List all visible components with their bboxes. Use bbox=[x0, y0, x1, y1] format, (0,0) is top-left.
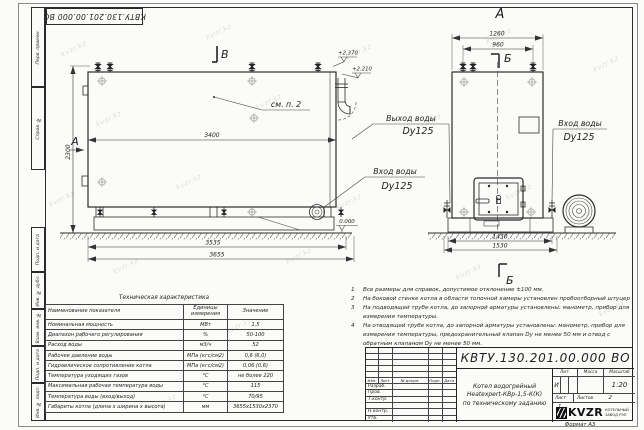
section-letter: В bbox=[221, 48, 229, 61]
pipe-label-text: Выход воды bbox=[386, 114, 436, 123]
doc-number: КВТУ.130.201.00.000 ВО bbox=[456, 348, 634, 369]
note-number: 4 bbox=[348, 322, 363, 349]
kvzr-logo-text: KVZR bbox=[568, 406, 603, 419]
format-label: Формат А3 bbox=[520, 422, 640, 428]
margin-cell-vzam-inv: Взам. инв. № bbox=[31, 309, 45, 346]
side-view: В А см. п. 2 +2.370 bbox=[60, 46, 373, 262]
dim-value: 1430 bbox=[492, 234, 507, 241]
company-name-line: ЗАВОД РЭП bbox=[605, 413, 629, 417]
section-letter: Б bbox=[504, 52, 512, 65]
table-row: Максимальная рабочая температура воды°С1… bbox=[46, 381, 284, 391]
drain-valve-icon bbox=[98, 207, 102, 217]
margin-cell-podp-data-2: Подп. и дата bbox=[31, 346, 45, 383]
title-block: КВТУ.130.201.00.000 ВО Котел водогрейный… bbox=[365, 347, 633, 421]
elevation-mark-2370: +2.370 bbox=[333, 51, 359, 67]
mass-header: Масса bbox=[578, 369, 604, 377]
dim-value: 1260 bbox=[489, 31, 504, 38]
product-name-line: по техническому заданию bbox=[463, 400, 546, 409]
dim-value: 960 bbox=[492, 42, 504, 49]
kvzr-logo-mark-icon bbox=[556, 407, 567, 419]
nameplate bbox=[519, 117, 539, 133]
drain-valve-icon bbox=[152, 207, 156, 217]
door-handle bbox=[476, 199, 489, 203]
table-row: Расход водым3/ч52 bbox=[46, 340, 284, 350]
valve-icon bbox=[315, 63, 320, 72]
elevation-mark-2210: +2.210 bbox=[342, 67, 373, 78]
margin-cell-podp-data-1: Подп. и дата bbox=[31, 227, 45, 272]
top-stamp-box: КВТУ.130.201.00.000 ВО bbox=[46, 8, 143, 25]
table-row: Диапазон рабочего регулирования%50-100 bbox=[46, 330, 284, 340]
pipe-dn-text: Dy125 bbox=[381, 181, 412, 192]
product-name-line: Котел водогрейный bbox=[473, 383, 536, 392]
mass-value bbox=[578, 377, 604, 394]
dim-3400: 3400 bbox=[88, 132, 336, 140]
boiler-shell-side bbox=[88, 72, 336, 207]
sheet-label: Лист bbox=[555, 396, 566, 401]
flange-mark-icon bbox=[249, 113, 259, 123]
note-number: 1 bbox=[348, 286, 363, 295]
margin-label: Подп. и дата bbox=[36, 234, 41, 265]
col-header: Наименование показателя bbox=[46, 305, 184, 320]
pipe-dn-text: Dy125 bbox=[563, 132, 594, 143]
margin-label: Взам. инв. № bbox=[36, 312, 41, 343]
col-header: Единицы измерения bbox=[184, 305, 228, 320]
elevation-value: +2.370 bbox=[338, 51, 359, 57]
lit-value: И bbox=[553, 377, 561, 394]
margin-label: Инв. № подл. bbox=[36, 386, 41, 418]
table-row: Габариты котла (длина х ширина х высота)… bbox=[46, 402, 284, 412]
callout-see-note-2: см. п. 2 bbox=[213, 96, 310, 110]
sheets-value: 2 bbox=[608, 395, 612, 401]
callout-text: см. п. 2 bbox=[271, 100, 301, 109]
table-row: Гидравлическое сопротивление котлаМПа (к… bbox=[46, 361, 284, 371]
elevation-mark-zero: 0.000 bbox=[336, 219, 358, 233]
valve-icon bbox=[107, 63, 112, 72]
note-item: 4На отводящей трубе котла, до запорной а… bbox=[348, 322, 631, 349]
lit-header: Лит. bbox=[553, 369, 578, 377]
pipe-dn-text: Dy125 bbox=[402, 126, 433, 137]
note-item: 1Все размеры для справок, допустимое отк… bbox=[348, 286, 631, 295]
pipe-label-text: Вход воды bbox=[558, 119, 602, 128]
note-text: На боковой стенке котла в области топочн… bbox=[363, 295, 631, 304]
margin-cell-sprav-no: Справ. № bbox=[31, 87, 45, 170]
lit-mass-scale-headers: Лит. Масса Масштаб bbox=[553, 369, 635, 377]
outlet-pipe-elbow bbox=[335, 78, 356, 120]
margin-label: Подп. и дата bbox=[36, 349, 41, 380]
tech-characteristics: Техническая характеристика Наименование … bbox=[45, 295, 283, 413]
view-title-letter: А bbox=[495, 7, 505, 22]
product-name: Котел водогрейный Heatexpert-КВр-1,5-К(К… bbox=[456, 369, 552, 422]
drain-valve-icon bbox=[222, 207, 226, 217]
furnace-door bbox=[474, 178, 525, 220]
pipe-label-text: Вход воды bbox=[373, 167, 417, 176]
flange-mark-icon bbox=[247, 76, 257, 86]
table-row: Температура воды (вход/выход)°С70/95 bbox=[46, 392, 284, 402]
note-item: 3На подводящей трубе котла, до запорной … bbox=[348, 304, 631, 322]
margin-cell-perv-primen: Перв. примен. bbox=[31, 7, 45, 87]
table-row: Рабочее давление водыМПа (кгс/см2)0,6 (6… bbox=[46, 350, 284, 360]
valve-icon bbox=[460, 63, 465, 72]
section-mark-b-top: Б bbox=[491, 52, 512, 68]
flange-mark-icon bbox=[97, 76, 107, 86]
flange-mark-icon bbox=[527, 77, 537, 87]
table-row: Температура уходящих газов°Сне более 220 bbox=[46, 371, 284, 381]
technical-notes: 1Все размеры для справок, допустимое отк… bbox=[348, 286, 631, 349]
note-item: 2На боковой стенке котла в области топоч… bbox=[348, 295, 631, 304]
flange-mark-icon bbox=[526, 207, 536, 217]
inlet-flange bbox=[310, 205, 325, 220]
table-row: Номинальная мощностьМВт1,5 bbox=[46, 320, 284, 330]
flange-mark-icon bbox=[97, 177, 107, 187]
margin-cell-inv-podl: Инв. № подл. bbox=[31, 383, 45, 421]
flange-mark-icon bbox=[247, 207, 257, 217]
dim-2300: 2300 bbox=[65, 66, 90, 233]
section-mark-v: В bbox=[212, 46, 229, 62]
ground-line-right bbox=[428, 233, 616, 240]
valve-icon bbox=[249, 63, 254, 72]
side-bracket bbox=[82, 176, 88, 186]
dim-value: 3535 bbox=[205, 240, 220, 247]
margin-cell-inv-dubl: Инв. № дубл. bbox=[31, 272, 45, 309]
sheet-row: Лист 1 Листов 2 bbox=[553, 394, 635, 403]
label-water-inlet-front: Вход воды Dy125 bbox=[552, 119, 607, 203]
outlet-pipe-front bbox=[444, 200, 451, 218]
top-stamp-number: КВТУ.130.201.00.000 ВО bbox=[43, 12, 146, 21]
section-mark-b-bottom: Б bbox=[499, 264, 514, 287]
side-bracket bbox=[83, 86, 88, 95]
flange-mark-icon bbox=[459, 207, 469, 217]
dim-value: 2300 bbox=[65, 144, 72, 159]
revision-table: Изм. Лист № докум. Подп. Дата Разраб. Пр… bbox=[366, 348, 456, 422]
title-block-right: Лит. Масса Масштаб И 1:20 Лист 1 Листов … bbox=[552, 369, 634, 422]
dim-value: 1530 bbox=[492, 243, 507, 250]
pipe-labels: Выход воды Dy125 Вход воды Dy125 Вход во… bbox=[323, 114, 607, 208]
note-number: 3 bbox=[348, 304, 363, 322]
note-text: Все размеры для справок, допустимое откл… bbox=[363, 286, 631, 295]
front-view: А 1260 960 Б bbox=[428, 7, 616, 287]
note-text: На подводящей трубе котла, до запорной а… bbox=[363, 304, 631, 322]
note-number: 2 bbox=[348, 295, 363, 304]
drain-valve-icon bbox=[339, 207, 343, 217]
lit-mass-scale-values: И 1:20 bbox=[553, 377, 635, 394]
blower-fan bbox=[563, 195, 595, 233]
margin-label: Справ. № bbox=[36, 117, 41, 140]
valve-icon bbox=[530, 63, 535, 72]
margin-label: Инв. № дубл. bbox=[36, 275, 41, 307]
margin-label: Перв. примен. bbox=[36, 30, 41, 65]
tech-table-title: Техническая характеристика bbox=[45, 295, 283, 301]
sheets-label: Листов bbox=[577, 396, 593, 401]
dim-960: 960 bbox=[463, 42, 533, 63]
sign-row-utv: Утв. bbox=[366, 416, 456, 422]
flange-mark-icon bbox=[459, 77, 469, 87]
base-frame-side bbox=[94, 207, 334, 230]
drawing-sheet: kvzr.kz kvzr.kz kvzr.kz kvzr.kz kvzr.kz … bbox=[0, 0, 644, 430]
scale-value: 1:20 bbox=[604, 377, 635, 394]
table-header-row: Наименование показателя Единицы измерени… bbox=[46, 305, 284, 320]
elevation-value: +2.210 bbox=[352, 67, 373, 73]
product-name-line: Heatexpert-КВр-1,5-К(К) bbox=[467, 391, 542, 400]
dim-value: 3400 bbox=[204, 132, 219, 139]
company-name: КОТЕЛЬНЫЙ ЗАВОД РЭП bbox=[605, 408, 629, 417]
company-logo: KVZR КОТЕЛЬНЫЙ ЗАВОД РЭП bbox=[553, 403, 635, 422]
note-text: На отводящей трубе котла, до запорной ар… bbox=[363, 322, 631, 349]
dim-3655: 3655 bbox=[88, 236, 354, 262]
label-water-inlet-side: Вход воды Dy125 bbox=[323, 167, 425, 208]
valve-icon bbox=[470, 63, 475, 72]
col-header: Значение bbox=[228, 305, 284, 320]
tech-table: Наименование показателя Единицы измерени… bbox=[45, 304, 284, 413]
scale-header: Масштаб bbox=[604, 369, 635, 377]
elevation-value: 0.000 bbox=[339, 219, 355, 225]
valve-icon bbox=[95, 63, 100, 72]
sign-row-tkontr: Т.контр. bbox=[366, 397, 456, 403]
section-mark-a: А bbox=[70, 135, 84, 150]
company-name-line: КОТЕЛЬНЫЙ bbox=[605, 408, 629, 412]
dim-value: 3655 bbox=[209, 252, 224, 259]
